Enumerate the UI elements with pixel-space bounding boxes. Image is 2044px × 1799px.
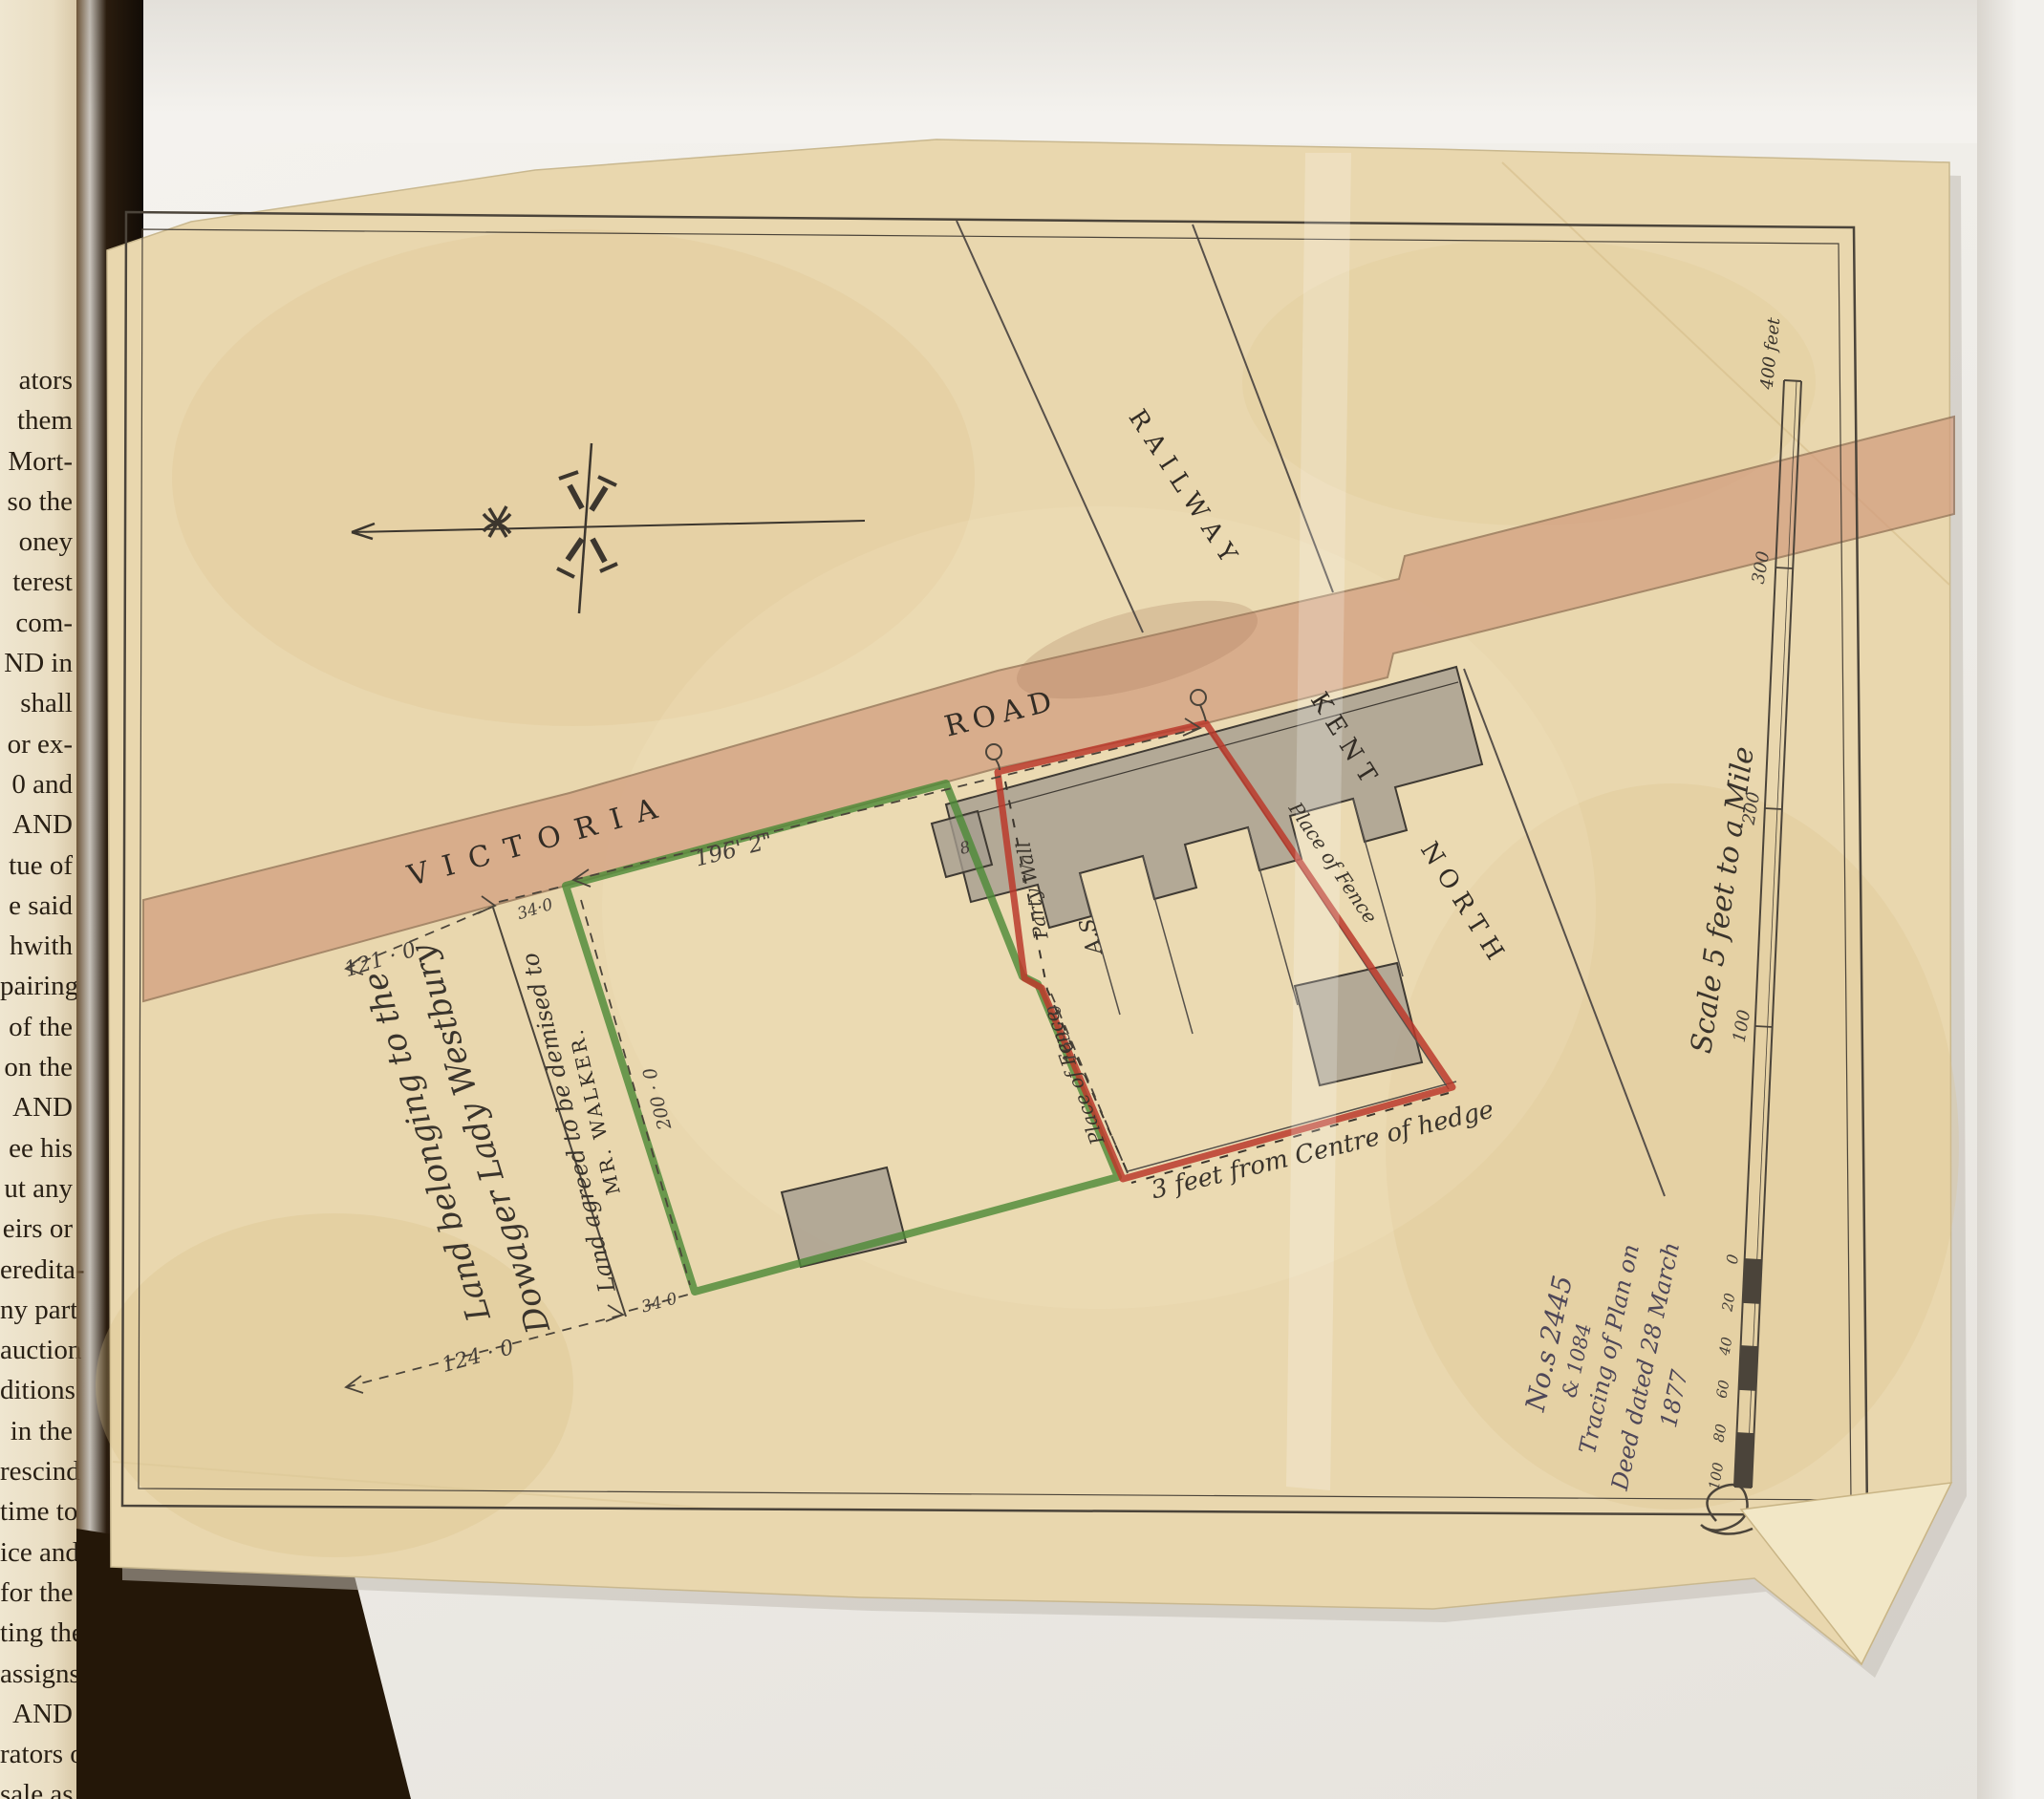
scale-sub-40: 40 <box>1715 1336 1735 1357</box>
photographed-deed-plan: atorsthemMort-so theoneyterestcom-ND ins… <box>0 0 2044 1799</box>
scale-sub-80: 80 <box>1710 1423 1730 1444</box>
scale-sub-60: 60 <box>1712 1379 1732 1400</box>
scale-sub-20: 20 <box>1718 1292 1738 1313</box>
